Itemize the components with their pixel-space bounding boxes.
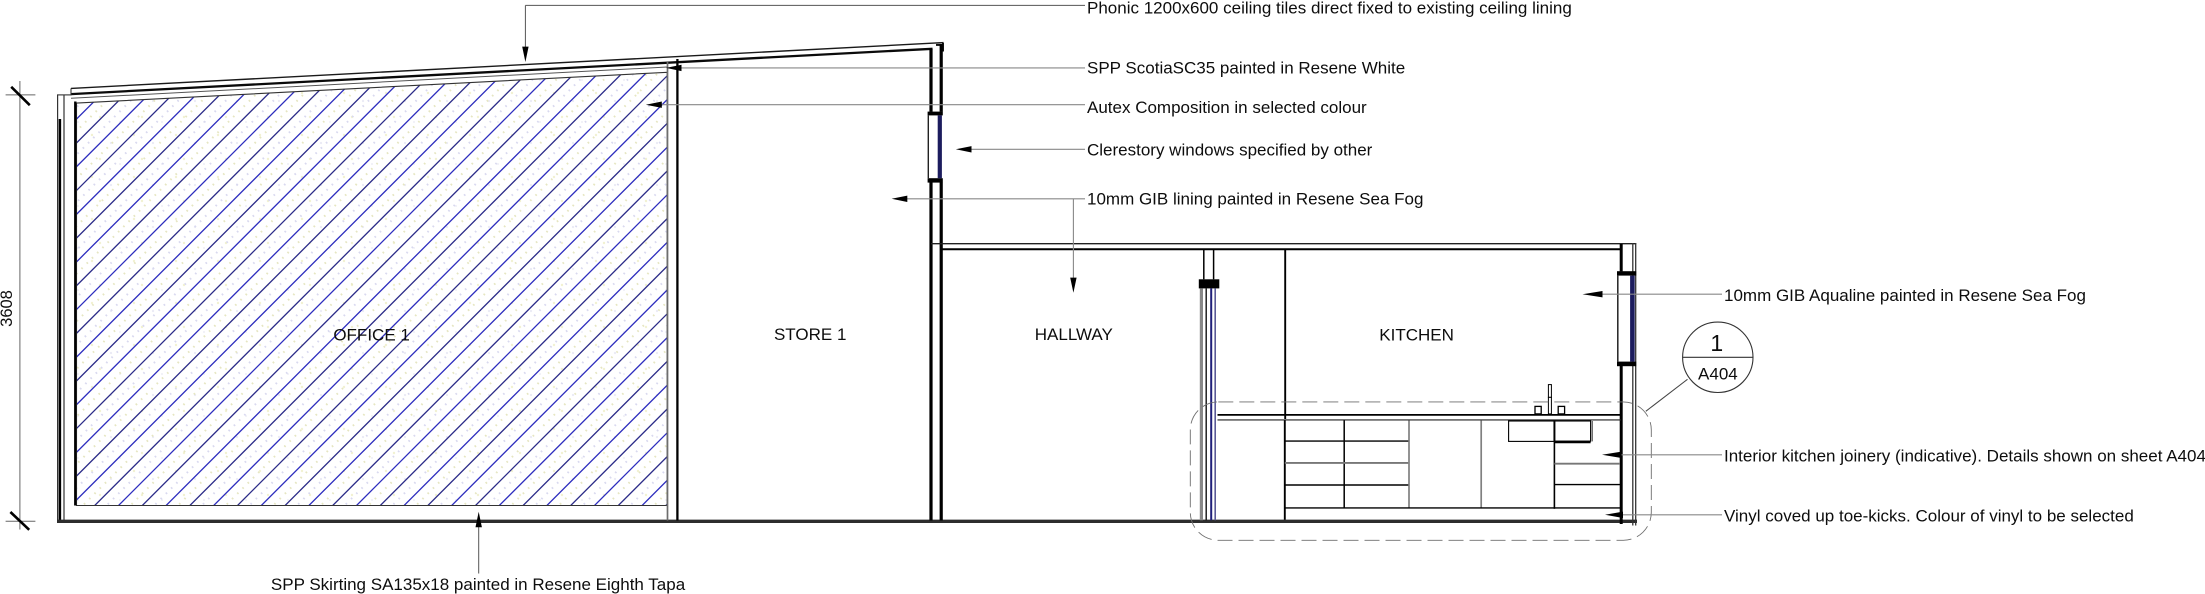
svg-text:10mm GIB lining painted in Res: 10mm GIB lining painted in Resene Sea Fo… [1087,189,1423,208]
svg-text:Clerestory windows specified b: Clerestory windows specified by other [1087,141,1373,160]
svg-text:3608: 3608 [0,290,16,327]
svg-text:KITCHEN: KITCHEN [1379,325,1454,344]
svg-text:Vinyl coved up toe-kicks. Colo: Vinyl coved up toe-kicks. Colour of viny… [1724,507,2134,526]
svg-text:OFFICE 1: OFFICE 1 [333,325,410,344]
svg-text:1: 1 [1710,330,1723,356]
svg-text:10mm GIB Aqualine painted in R: 10mm GIB Aqualine painted in Resene Sea … [1724,286,2086,305]
svg-text:Interior kitchen joinery (indi: Interior kitchen joinery (indicative). D… [1724,446,2205,465]
svg-text:HALLWAY: HALLWAY [1035,325,1113,344]
svg-text:A404: A404 [1698,365,1738,384]
svg-text:SPP Skirting SA135x18 painted: SPP Skirting SA135x18 painted in Resene … [271,575,686,594]
svg-text:Autex Composition in selected: Autex Composition in selected colour [1087,98,1367,117]
svg-text:SPP ScotiaSC35 painted in Rese: SPP ScotiaSC35 painted in Resene White [1087,59,1405,78]
svg-text:STORE 1: STORE 1 [774,325,846,344]
svg-text:Phonic 1200x600 ceiling tiles: Phonic 1200x600 ceiling tiles direct fix… [1087,0,1572,18]
